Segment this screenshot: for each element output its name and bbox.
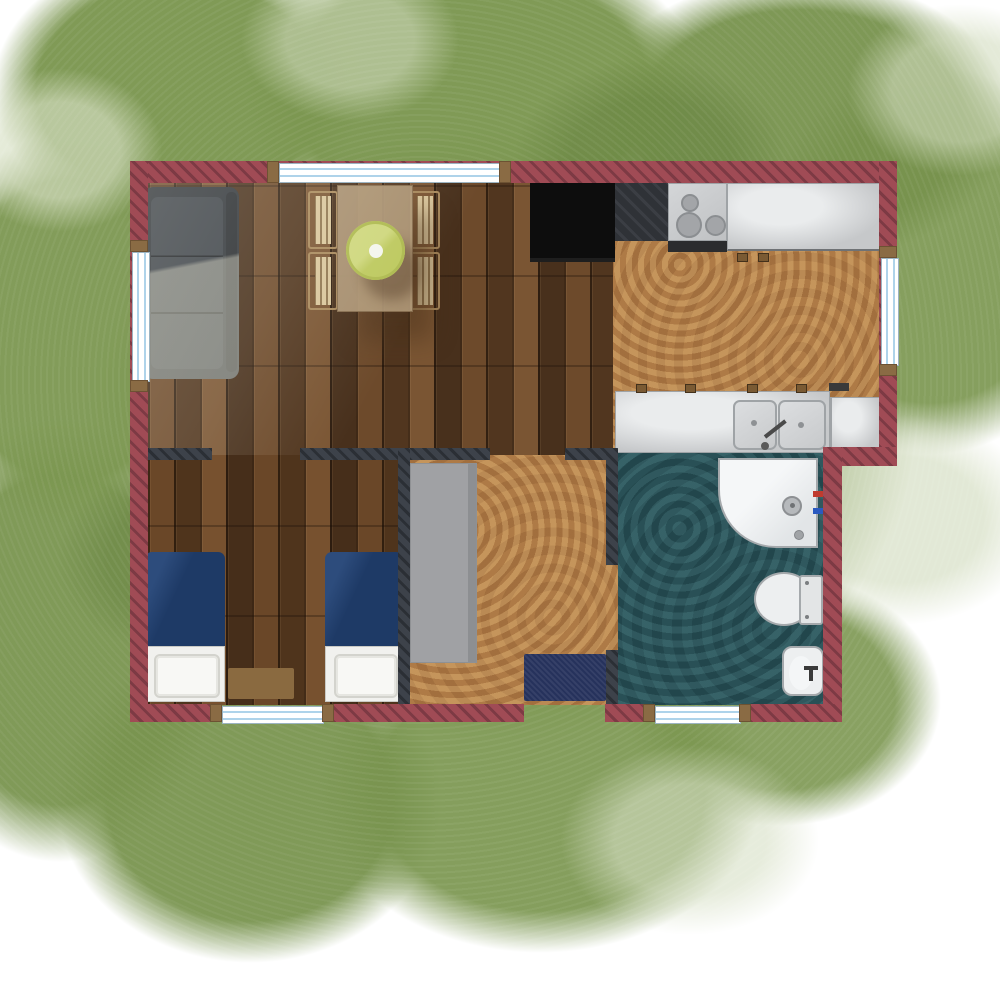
sink-drain xyxy=(798,422,804,428)
toilet-hinge xyxy=(805,581,809,585)
exterior-wall-right-lower xyxy=(823,447,842,722)
kitchen-counter-sink xyxy=(615,391,830,453)
wall-cap xyxy=(739,704,751,722)
bed-left-pillow xyxy=(154,654,220,698)
stove-front-edge xyxy=(668,241,727,252)
interior-wall-hall-bath-lower xyxy=(606,650,618,705)
window-right xyxy=(881,258,899,366)
bedside-rug xyxy=(228,668,294,699)
parasol-center-dot xyxy=(369,244,383,258)
cabinet-handle-dark xyxy=(829,383,849,391)
bed-left-blanket xyxy=(145,552,225,650)
interior-wall-hall-left xyxy=(400,448,490,460)
faucet-base xyxy=(761,442,769,450)
sink-basin-left xyxy=(733,400,777,450)
exterior-wall-top xyxy=(130,161,897,183)
burner-small xyxy=(681,194,699,212)
sofa-light-patch xyxy=(143,187,239,379)
toilet-hinge xyxy=(805,615,809,619)
window-bathroom xyxy=(655,706,741,724)
table-parasol xyxy=(346,221,405,280)
dining-chair-top-left xyxy=(308,191,338,249)
wall-cap xyxy=(322,704,334,722)
sofa xyxy=(143,187,239,379)
sink-drain xyxy=(751,420,757,426)
wardrobe xyxy=(410,463,477,663)
window-bedroom xyxy=(222,706,324,724)
wall-cap xyxy=(130,240,148,252)
kitchen-counter-top xyxy=(727,183,880,251)
backyard-scene xyxy=(0,0,1000,1000)
bed-right-base xyxy=(325,646,403,702)
cabinet-handle xyxy=(747,384,758,393)
bed-right-blanket xyxy=(325,552,403,650)
bed-right-pillow xyxy=(334,654,398,698)
wall-cap xyxy=(879,246,897,258)
dining-chair-bottom-right xyxy=(410,252,440,310)
shower-drain xyxy=(794,530,804,540)
wall-cap xyxy=(130,380,148,392)
cabinet-handle xyxy=(685,384,696,393)
cabinet-handle xyxy=(796,384,807,393)
dining-chair-bottom-left xyxy=(308,252,338,310)
kitchen-counter-corner xyxy=(830,397,880,453)
wall-cap xyxy=(210,704,222,722)
window-left xyxy=(132,252,150,382)
wall-cap xyxy=(267,161,279,183)
interior-wall-hall-bath-upper xyxy=(606,448,618,565)
interior-wall-bedroom-hall xyxy=(398,448,410,705)
burner-medium xyxy=(705,215,726,236)
window-top xyxy=(279,163,501,183)
wall-cap xyxy=(643,704,655,722)
dark-worktop xyxy=(615,183,668,241)
toilet-tank xyxy=(799,575,823,625)
bidet xyxy=(782,646,824,696)
dining-chair-top-right xyxy=(410,191,440,249)
bidet-faucet-stem xyxy=(809,668,813,681)
interior-wall-bedroom-right xyxy=(300,448,400,460)
black-appliance xyxy=(530,180,615,262)
stove xyxy=(668,183,727,241)
sink-basin-right xyxy=(778,400,826,450)
interior-wall-bedroom-left xyxy=(148,448,212,460)
wall-cap xyxy=(499,161,511,183)
burner-large xyxy=(676,212,702,238)
cabinet-handle xyxy=(737,253,748,262)
bed-left-base xyxy=(145,646,225,702)
exterior-wall-bottom-2 xyxy=(322,704,524,722)
exterior-wall-bottom-1 xyxy=(130,704,222,722)
cabinet-handle xyxy=(636,384,647,393)
exterior-wall-bottom-4 xyxy=(739,704,842,722)
cabinet-handle xyxy=(758,253,769,262)
wall-cap xyxy=(879,364,897,376)
doormat xyxy=(524,654,606,701)
shower-faucet-dot xyxy=(790,503,795,508)
